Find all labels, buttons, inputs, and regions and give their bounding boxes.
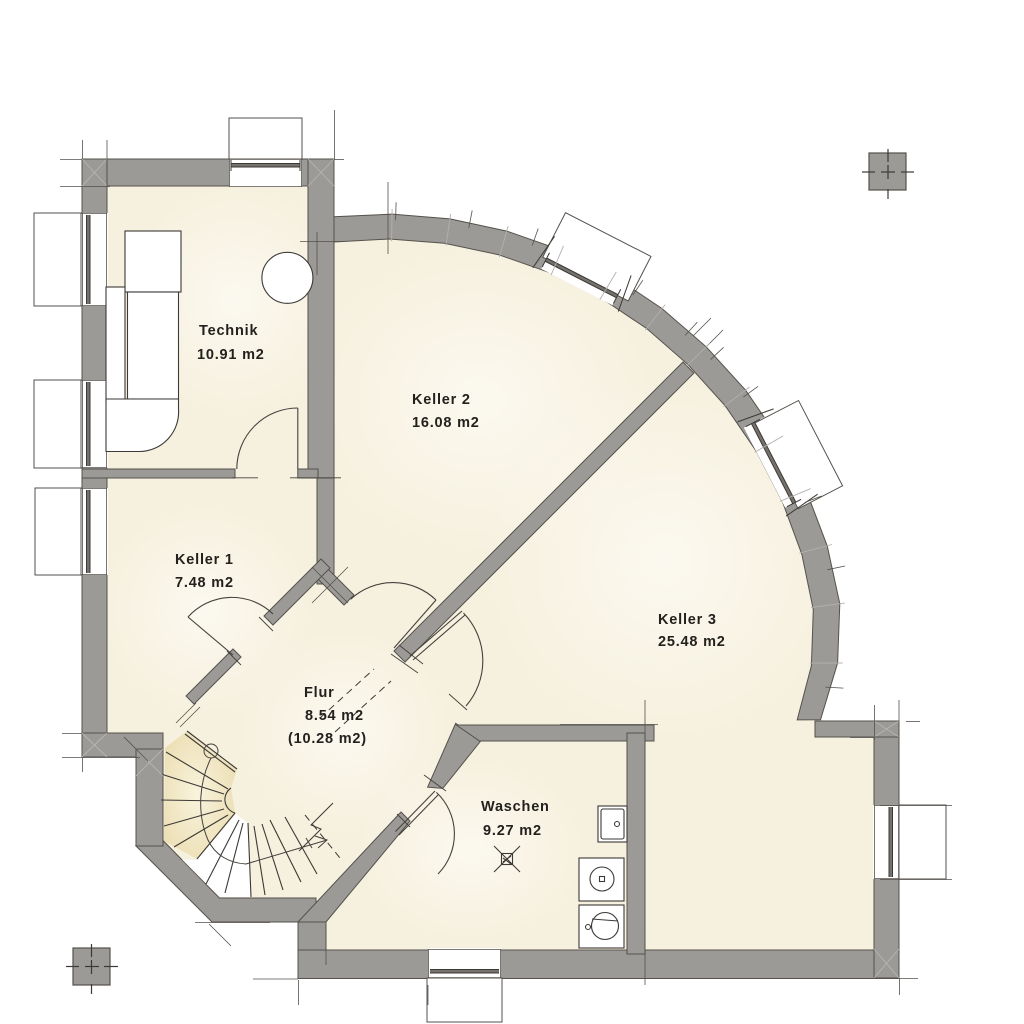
svg-text:8.54 m2: 8.54 m2 xyxy=(305,708,364,724)
svg-text:Flur: Flur xyxy=(304,685,335,701)
svg-text:9.27 m2: 9.27 m2 xyxy=(483,823,542,839)
svg-text:Keller 3: Keller 3 xyxy=(658,612,717,628)
svg-text:10.91 m2: 10.91 m2 xyxy=(197,347,265,363)
svg-text:(10.28 m2): (10.28 m2) xyxy=(288,731,367,747)
svg-text:16.08 m2: 16.08 m2 xyxy=(412,415,480,431)
svg-text:Keller 1: Keller 1 xyxy=(175,552,234,568)
svg-text:Keller 2: Keller 2 xyxy=(412,392,471,408)
svg-text:Technik: Technik xyxy=(199,323,258,339)
svg-text:Waschen: Waschen xyxy=(481,799,550,815)
svg-text:7.48 m2: 7.48 m2 xyxy=(175,575,234,591)
svg-text:25.48 m2: 25.48 m2 xyxy=(658,634,726,650)
